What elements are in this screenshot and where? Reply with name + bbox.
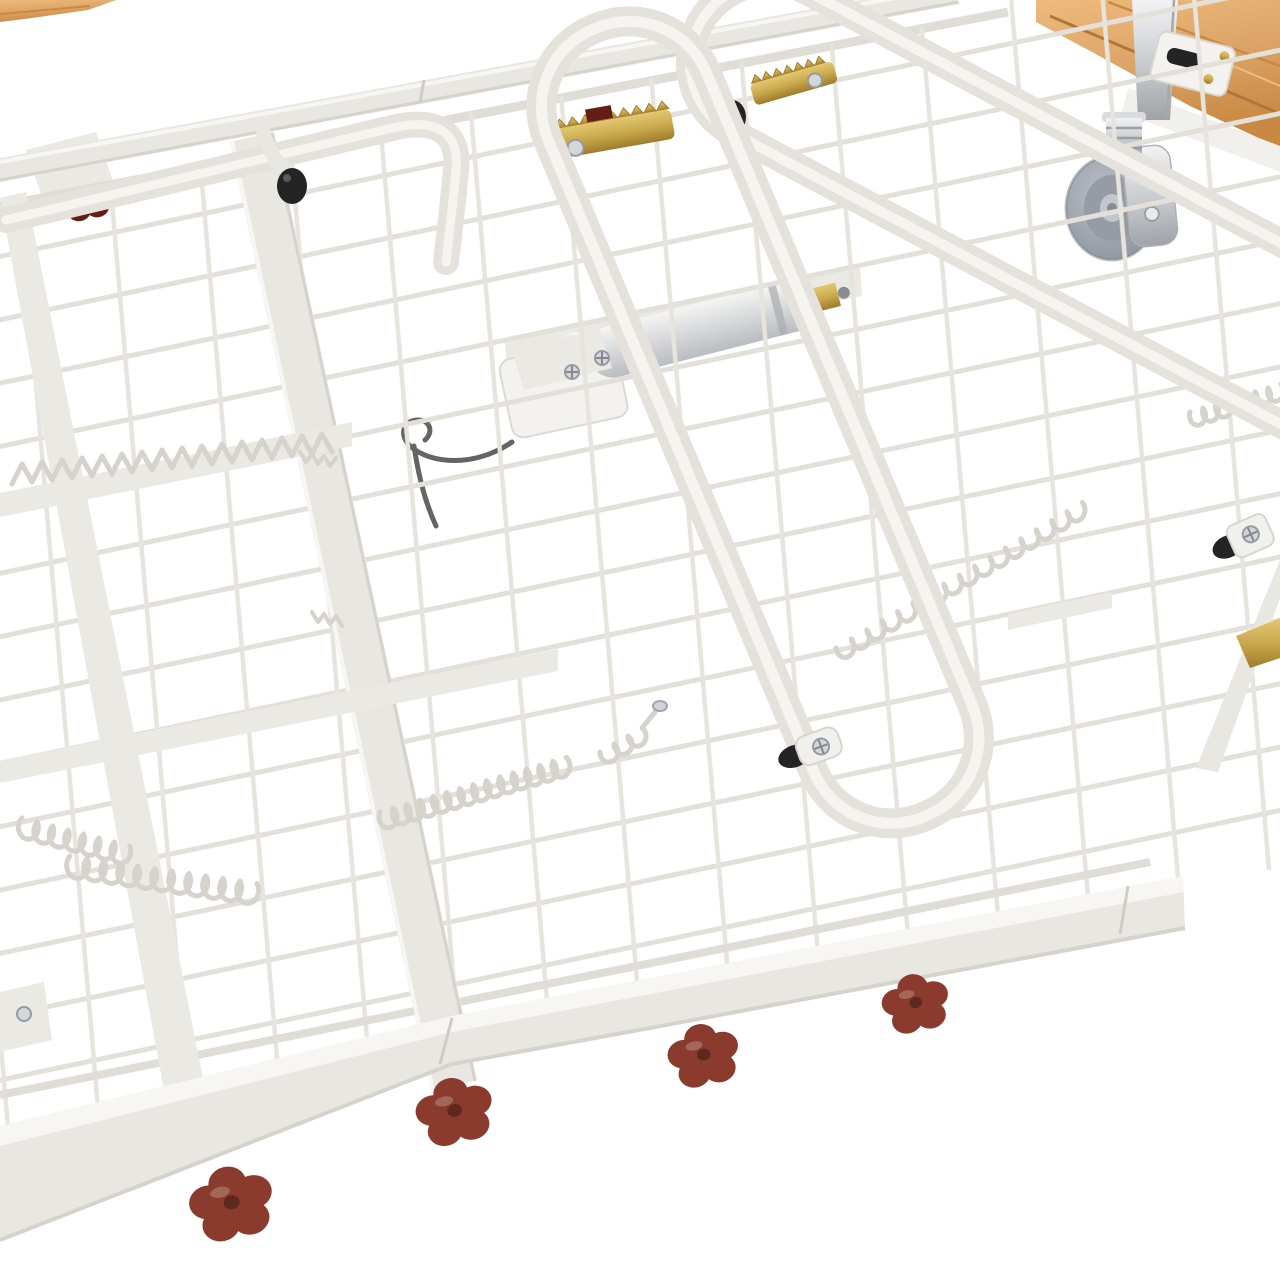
hook-clip (653, 701, 667, 711)
edge-bracket (0, 982, 52, 1052)
bed-frame-photo (0, 0, 1280, 1280)
product-photo (0, 0, 1280, 1280)
